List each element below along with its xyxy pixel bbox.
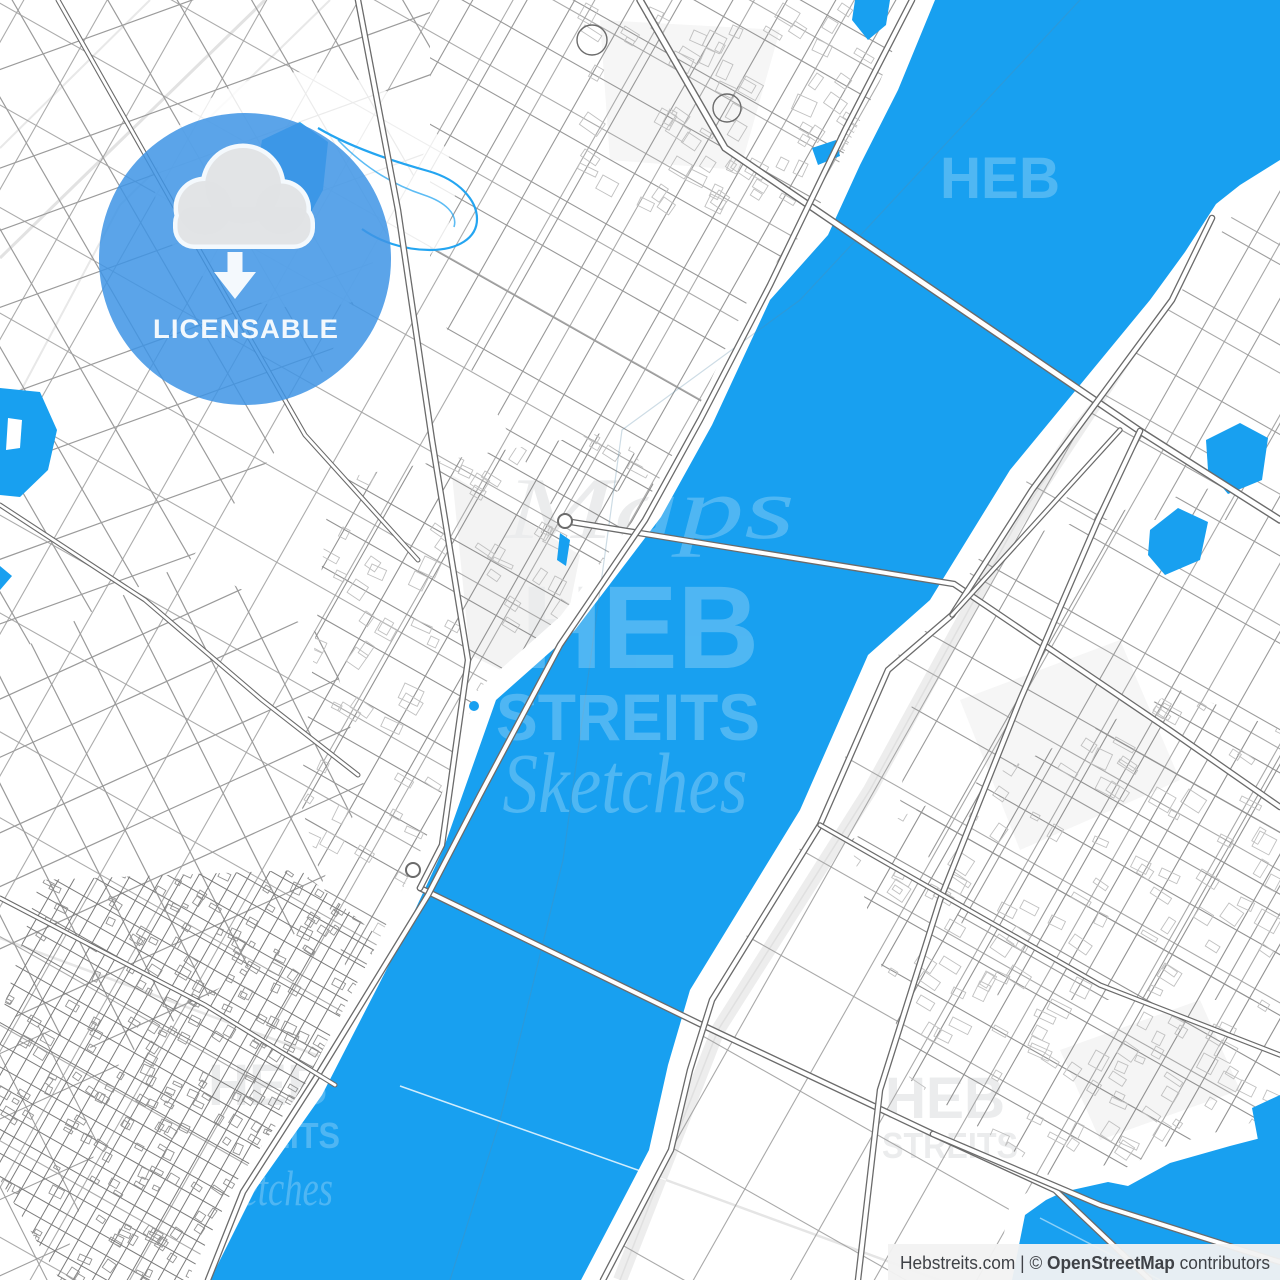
svg-text:LICENSABLE: LICENSABLE xyxy=(153,314,339,344)
svg-text:HEB: HEB xyxy=(940,146,1060,211)
svg-text:Hebstreits.com | © OpenStreetM: Hebstreits.com | © OpenStreetMap contrib… xyxy=(900,1252,1270,1273)
svg-text:Sketches: Sketches xyxy=(503,735,748,831)
